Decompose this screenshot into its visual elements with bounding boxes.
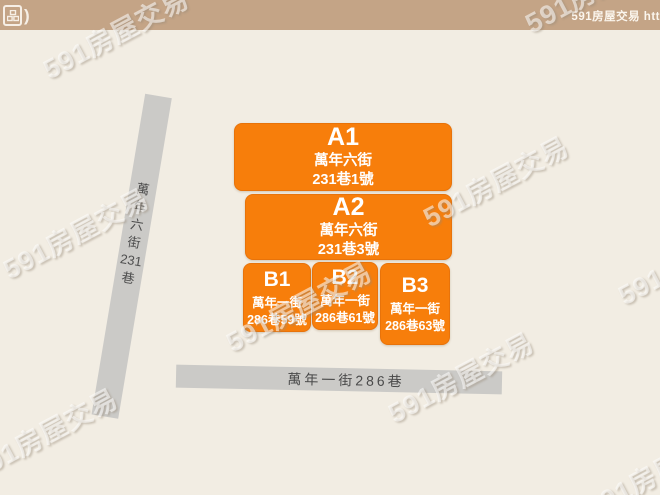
- road-char: 巷: [121, 270, 136, 285]
- block-title: A2: [333, 193, 365, 222]
- header-title: 591房屋交易 htt: [571, 8, 660, 24]
- road-char: 街: [126, 235, 141, 250]
- block-title: B1: [264, 267, 291, 292]
- grid-logo-icon: [3, 5, 22, 26]
- watermark: 591房屋交易: [610, 203, 660, 313]
- building-block-a2[interactable]: A2 萬年六街 231巷3號: [245, 194, 452, 260]
- road-char: 年: [132, 199, 147, 214]
- block-number: 231巷3號: [318, 241, 379, 261]
- road-wannian-1st-lane286: 萬年一街286巷: [176, 365, 502, 395]
- watermark: 591房屋交易: [578, 415, 660, 495]
- road-char: 231: [119, 252, 143, 268]
- block-street: 萬年一街: [252, 295, 302, 312]
- building-block-b2[interactable]: B2 萬年一街 286巷61號: [312, 262, 378, 330]
- building-block-a1[interactable]: A1 萬年六街 231巷1號: [234, 123, 452, 191]
- block-number: 286巷61號: [315, 310, 375, 327]
- block-title: B3: [402, 273, 429, 298]
- block-title: B2: [332, 265, 359, 290]
- block-street: 萬年一街: [320, 293, 370, 310]
- map-screenshot: ) 591房屋交易 htt 萬 年 六 街 231 巷 萬年一街286巷 A1 …: [0, 0, 660, 495]
- building-block-b1[interactable]: B1 萬年一街 286巷59號: [243, 263, 311, 332]
- block-street: 萬年一街: [390, 301, 440, 318]
- header-bar: ) 591房屋交易 htt: [0, 0, 660, 30]
- building-block-b3[interactable]: B3 萬年一街 286巷63號: [380, 263, 450, 345]
- block-number: 286巷63號: [385, 318, 445, 335]
- road-label-horizontal: 萬年一街286巷: [273, 368, 405, 391]
- block-street: 萬年六街: [320, 222, 378, 242]
- road-char: 六: [129, 217, 144, 232]
- app-logo: ): [3, 5, 30, 26]
- block-number: 231巷1號: [312, 171, 373, 191]
- block-title: A1: [327, 123, 359, 152]
- road-wannian-6th-lane231: 萬 年 六 街 231 巷: [92, 94, 172, 419]
- block-number: 286巷59號: [247, 312, 307, 329]
- road-label-vertical: 萬 年 六 街 231 巷: [114, 181, 158, 287]
- road-char: 萬: [135, 182, 150, 197]
- logo-paren-text: ): [24, 6, 30, 26]
- block-street: 萬年六街: [314, 152, 372, 172]
